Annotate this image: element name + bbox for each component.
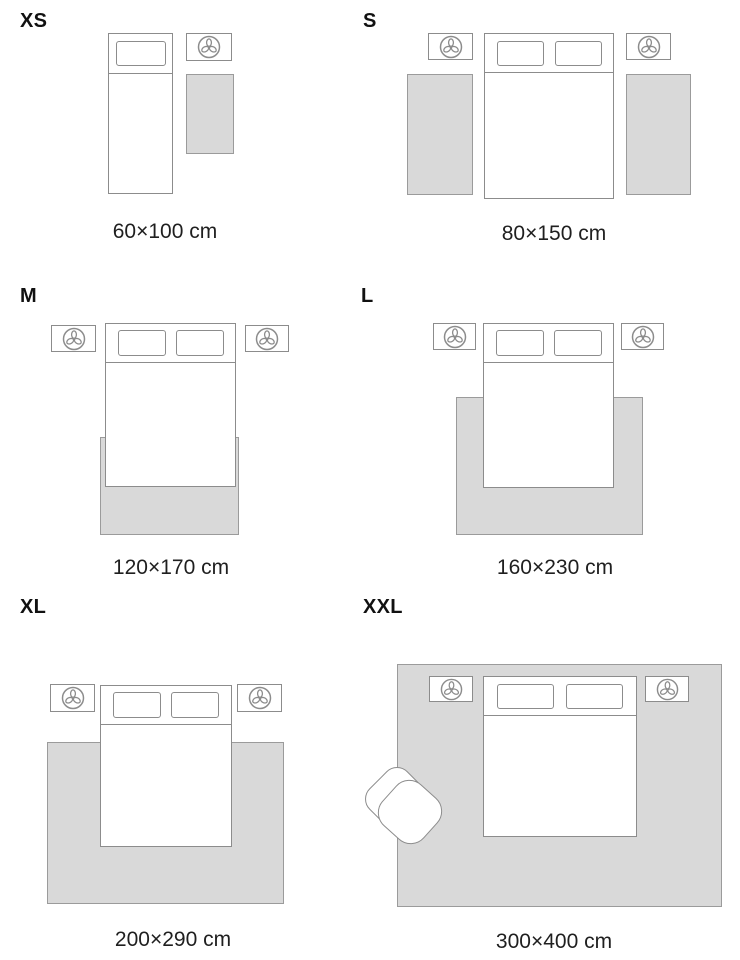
rug bbox=[186, 74, 234, 154]
pillow-right bbox=[555, 41, 602, 66]
size-caption-xxl: 300×400 cm bbox=[454, 930, 654, 953]
nightstand-left bbox=[429, 676, 473, 702]
plant-icon bbox=[439, 35, 463, 59]
nightstand-left bbox=[428, 33, 473, 60]
pillow-left bbox=[497, 41, 544, 66]
single-bed bbox=[108, 33, 173, 194]
rug-size-guide: XS 60×100 cm S bbox=[0, 0, 740, 960]
plant-icon bbox=[197, 35, 221, 59]
bed-headboard bbox=[101, 686, 231, 725]
double-bed bbox=[483, 676, 637, 837]
double-bed bbox=[484, 33, 614, 199]
pillow-right bbox=[554, 330, 602, 356]
plant-icon bbox=[248, 686, 272, 710]
pillow-left bbox=[497, 684, 554, 709]
pillow-right bbox=[566, 684, 623, 709]
nightstand bbox=[186, 33, 232, 61]
plant-icon bbox=[637, 35, 661, 59]
pillow-left bbox=[113, 692, 161, 718]
plant-icon bbox=[440, 678, 463, 701]
bed-headboard bbox=[109, 34, 172, 74]
plant-icon bbox=[631, 325, 655, 349]
plant-icon bbox=[61, 686, 85, 710]
pillow-left bbox=[118, 330, 166, 356]
double-bed bbox=[100, 685, 232, 847]
nightstand-left bbox=[433, 323, 476, 350]
bed-headboard bbox=[484, 324, 613, 363]
nightstand-right bbox=[621, 323, 664, 350]
pillow-left bbox=[496, 330, 544, 356]
double-bed bbox=[483, 323, 614, 488]
bed-headboard bbox=[106, 324, 235, 363]
rug-left bbox=[407, 74, 473, 195]
nightstand-right bbox=[645, 676, 689, 702]
nightstand-left bbox=[50, 684, 95, 712]
armchair bbox=[360, 766, 450, 856]
plant-icon bbox=[255, 327, 279, 351]
bed-headboard bbox=[484, 677, 636, 716]
plant-icon bbox=[443, 325, 467, 349]
pillow-right bbox=[171, 692, 219, 718]
nightstand-right bbox=[245, 325, 289, 352]
plant-icon bbox=[62, 327, 86, 351]
bed-headboard bbox=[485, 34, 613, 73]
rug-right bbox=[626, 74, 691, 195]
nightstand-right bbox=[237, 684, 282, 712]
double-bed bbox=[105, 323, 236, 487]
nightstand-right bbox=[626, 33, 671, 60]
pillow-right bbox=[176, 330, 224, 356]
pillow bbox=[116, 41, 166, 66]
nightstand-left bbox=[51, 325, 96, 352]
size-label-xxl: XXL bbox=[363, 597, 403, 617]
plant-icon bbox=[656, 678, 679, 701]
